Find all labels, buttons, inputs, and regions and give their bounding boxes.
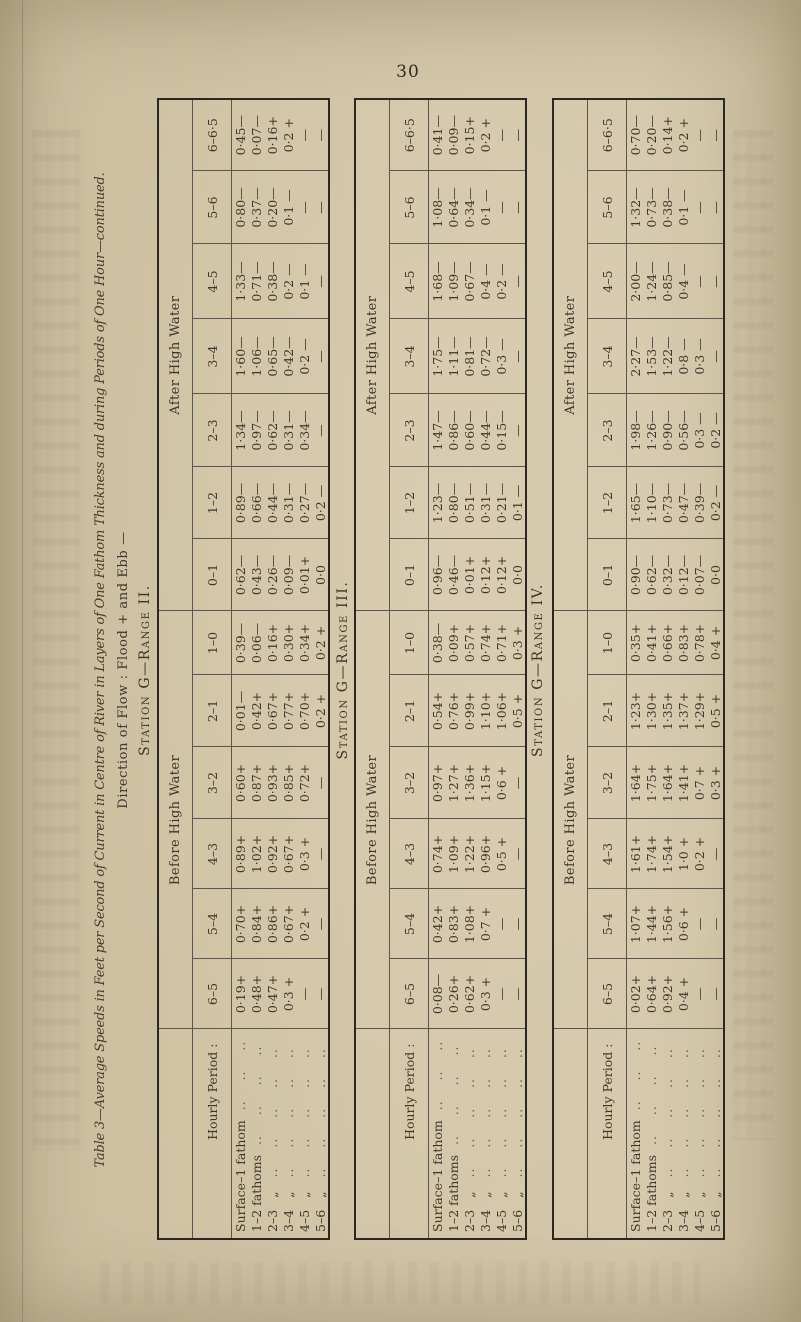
data-cell: 0·70+ (232, 889, 249, 959)
data-cell: 0·14+ (659, 99, 675, 171)
data-cell: 0·2 + (691, 819, 707, 889)
data-cell: 1·64+ (659, 747, 675, 819)
row-label: 1–2 fathoms (643, 1029, 659, 1239)
data-cell: 0·39— (691, 467, 707, 539)
data-cell: 0·08— (429, 959, 446, 1029)
data-cell: 0·96+ (477, 819, 493, 889)
data-cell: — (509, 244, 526, 319)
col-header: 6–5 (588, 959, 627, 1029)
col-header: 0–1 (588, 539, 627, 611)
data-cell: 0·3 — (691, 319, 707, 394)
data-cell: 0·70— (627, 99, 644, 171)
table-row: 5–6„————0·2 +0·2 +0·00·2 —————— (312, 99, 329, 1239)
col-header: 1–2 (390, 467, 429, 539)
data-cell: 0·89+ (232, 819, 249, 889)
data-cell: 0·92+ (264, 819, 280, 889)
data-cell: 0·7 + (477, 889, 493, 959)
data-cell: 0·89— (232, 467, 249, 539)
data-cell: 1·75— (429, 319, 446, 394)
data-cell: 1·41+ (675, 747, 691, 819)
col-header: 6–6·5 (588, 99, 627, 171)
table-row: 3–4„0·3 +0·7 +0·96+1·15+1·10+0·74+0·12+0… (477, 99, 493, 1239)
data-cell: — (691, 99, 707, 171)
group-header-row: Before High WaterAfter High Water (158, 99, 193, 1239)
data-cell: — (296, 171, 312, 244)
data-cell: 0·73— (659, 467, 675, 539)
data-cell: 0·66— (248, 467, 264, 539)
row-label: 4–5„ (691, 1029, 707, 1239)
data-cell: 0·74+ (477, 611, 493, 675)
col-header: 3–2 (390, 747, 429, 819)
data-cell: 0·86+ (264, 889, 280, 959)
data-cell: 1·11— (445, 319, 461, 394)
col-header: 2–1 (390, 675, 429, 747)
data-cell: 0·86— (445, 394, 461, 467)
data-cell: 0·1 — (509, 467, 526, 539)
data-cell: 0·62+ (461, 959, 477, 1029)
table-row: Surface–1 fathom0·19+0·70+0·89+0·60+0·01… (232, 99, 249, 1239)
data-cell: 0·3 + (707, 747, 724, 819)
col-header: 6–6·5 (390, 99, 429, 171)
data-cell: 0·3 + (477, 959, 493, 1029)
data-cell: 1·64+ (627, 747, 644, 819)
data-cell: — (296, 959, 312, 1029)
data-cell: — (312, 889, 329, 959)
row-label: 2–3„ (264, 1029, 280, 1239)
row-label: 3–4„ (280, 1029, 296, 1239)
data-cell: 1·27+ (445, 747, 461, 819)
col-header: 6–5 (193, 959, 232, 1029)
table-row: Surface–1 fathom0·02+1·07+1·61+1·64+1·23… (627, 99, 644, 1239)
data-cell: 0·74+ (429, 819, 446, 889)
group-after-high-water: After High Water (355, 99, 390, 611)
data-cell: 1·54+ (659, 819, 675, 889)
data-cell: 0·31— (477, 467, 493, 539)
col-header: 5–6 (390, 171, 429, 244)
row-label: 3–4„ (675, 1029, 691, 1239)
data-cell: 0·87+ (248, 747, 264, 819)
row-label: 3–4„ (477, 1029, 493, 1239)
table-body: Surface–1 fathom0·19+0·70+0·89+0·60+0·01… (232, 99, 330, 1239)
row-label: 1–2 fathoms (248, 1029, 264, 1239)
data-cell: 0·7 + (691, 747, 707, 819)
data-cell: 0·51— (461, 467, 477, 539)
data-cell: 0·4 — (477, 244, 493, 319)
data-cell: 0·99+ (461, 675, 477, 747)
data-cell: 0·31— (280, 394, 296, 467)
speed-table: Before High WaterAfter High Water Hourly… (354, 98, 527, 1240)
data-cell: 0·5 + (509, 675, 526, 747)
data-cell: 0·16+ (264, 99, 280, 171)
data-cell: 0·67+ (280, 889, 296, 959)
data-cell: 0·85+ (280, 747, 296, 819)
data-cell: 0·83+ (445, 889, 461, 959)
table-row: Surface–1 fathom0·08—0·42+0·74+0·97+0·54… (429, 99, 446, 1239)
data-cell: 0·34— (296, 394, 312, 467)
table-row: 5–6„————0·5 +0·3 +0·00·1 —————— (509, 99, 526, 1239)
data-cell: 1·10+ (477, 675, 493, 747)
col-header: 4–5 (390, 244, 429, 319)
data-cell: — (691, 889, 707, 959)
group-header-row: Before High WaterAfter High Water (553, 99, 588, 1239)
row-label: 2–3„ (659, 1029, 675, 1239)
data-cell: 1·23— (429, 467, 446, 539)
data-cell: 0·97— (248, 394, 264, 467)
data-cell: 0·34+ (296, 611, 312, 675)
data-cell: 0·2 + (296, 889, 312, 959)
col-header: 1–0 (193, 611, 232, 675)
col-header: 2–1 (588, 675, 627, 747)
data-cell: — (493, 171, 509, 244)
table-row: 3–4„0·3 +0·67+0·67+0·85+0·77+0·30+0·09—0… (280, 99, 296, 1239)
col-header: 1–0 (588, 611, 627, 675)
group-empty-cell (355, 1029, 390, 1239)
data-cell: 0·31— (280, 467, 296, 539)
col-header: 2–3 (390, 394, 429, 467)
data-cell: 0·2 — (707, 394, 724, 467)
data-cell: 0·02+ (627, 959, 644, 1029)
data-cell: 1·32— (627, 171, 644, 244)
data-cell: 0·2 — (493, 244, 509, 319)
book-page: 30 Table 3—Average Speeds in Feet per Se… (0, 0, 801, 1322)
data-cell: — (509, 99, 526, 171)
data-cell: 0·6 + (493, 747, 509, 819)
data-cell: 1·35+ (659, 675, 675, 747)
group-before-high-water: Before High Water (553, 611, 588, 1029)
data-cell: — (707, 959, 724, 1029)
data-cell: 0·71— (248, 244, 264, 319)
group-after-high-water: After High Water (553, 99, 588, 611)
data-cell: — (312, 171, 329, 244)
data-cell: — (312, 244, 329, 319)
col-header: 4–5 (193, 244, 232, 319)
data-cell: 2·00— (627, 244, 644, 319)
data-cell: 1·74+ (643, 819, 659, 889)
data-cell: — (509, 819, 526, 889)
data-cell: 0·38— (659, 171, 675, 244)
data-cell: 0·19+ (232, 959, 249, 1029)
col-header: 2–1 (193, 675, 232, 747)
col-header: 4–3 (390, 819, 429, 889)
data-cell: 0·72+ (296, 747, 312, 819)
row-label: 5–6„ (509, 1029, 526, 1239)
data-cell: 0·0 (707, 539, 724, 611)
data-cell: 0·1 — (296, 244, 312, 319)
table-body: Surface–1 fathom0·02+1·07+1·61+1·64+1·23… (627, 99, 725, 1239)
station-caption: Station G—Range II. (137, 100, 153, 1240)
data-cell: — (509, 394, 526, 467)
col-header: 5–6 (588, 171, 627, 244)
data-cell: 1·22+ (461, 819, 477, 889)
data-cell: 0·97+ (429, 747, 446, 819)
row-label: 4–5„ (493, 1029, 509, 1239)
col-header: 1–0 (390, 611, 429, 675)
data-cell: — (707, 319, 724, 394)
data-cell: — (691, 959, 707, 1029)
data-cell: — (509, 959, 526, 1029)
data-cell: 1·08— (429, 171, 446, 244)
group-before-high-water: Before High Water (158, 611, 193, 1029)
data-cell: — (312, 747, 329, 819)
data-cell: 0·62— (232, 539, 249, 611)
data-cell: 0·4 + (707, 611, 724, 675)
data-cell: 0·30+ (280, 611, 296, 675)
station-block: Station G—Range II. Before High WaterAft… (137, 100, 330, 1240)
col-header: 4–5 (588, 244, 627, 319)
data-cell: 0·60+ (232, 747, 249, 819)
data-cell: 0·3 + (509, 611, 526, 675)
data-cell: 0·15+ (461, 99, 477, 171)
data-cell: 0·62— (643, 539, 659, 611)
table-row: 1–2 fathoms0·64+1·44+1·74+1·75+1·30+0·41… (643, 99, 659, 1239)
data-cell: 0·1 — (477, 171, 493, 244)
data-cell: 0·01+ (461, 539, 477, 611)
row-label: 2–3„ (461, 1029, 477, 1239)
data-cell: 0·35+ (627, 611, 644, 675)
data-cell: 0·2 + (312, 611, 329, 675)
data-cell: 0·01+ (296, 539, 312, 611)
col-header: 4–3 (588, 819, 627, 889)
data-cell: 0·2 + (312, 675, 329, 747)
data-cell: 1·37+ (675, 675, 691, 747)
col-header: 5–4 (588, 889, 627, 959)
data-cell: — (707, 244, 724, 319)
data-cell: 0·41+ (643, 611, 659, 675)
station-caption: Station G—Range IV. (530, 100, 546, 1240)
data-cell: 1·02+ (248, 819, 264, 889)
data-cell: 0·26+ (445, 959, 461, 1029)
data-cell: 1·07+ (627, 889, 644, 959)
table-body: Surface–1 fathom0·08—0·42+0·74+0·97+0·54… (429, 99, 527, 1239)
table-row: 2–3„0·62+1·08+1·22+1·36+0·99+0·57+0·01+0… (461, 99, 477, 1239)
data-cell: 0·2 — (296, 319, 312, 394)
table-row: 2–3„0·92+1·56+1·54+1·64+1·35+0·66+0·32—0… (659, 99, 675, 1239)
data-cell: 1·15+ (477, 747, 493, 819)
data-cell: 0·85— (659, 244, 675, 319)
data-cell: 0·67+ (264, 675, 280, 747)
showthrough-bottom (100, 1262, 700, 1304)
col-header: 0–1 (390, 539, 429, 611)
data-cell: 0·38— (429, 611, 446, 675)
data-cell: 0·54+ (429, 675, 446, 747)
table-row: 3–4„0·4 +0·6 +1·0 +1·41+1·37+0·83+0·12—0… (675, 99, 691, 1239)
speed-table: Before High WaterAfter High Water Hourly… (157, 98, 330, 1240)
data-cell: 0·5 + (707, 675, 724, 747)
group-empty-cell (158, 1029, 193, 1239)
column-header-row: Hourly Period : 6–55–44–33–22–11–00–11–2… (588, 99, 627, 1239)
group-after-high-water: After High Water (158, 99, 193, 611)
hourly-period-header: Hourly Period : (390, 1029, 429, 1239)
data-cell: 0·01— (232, 675, 249, 747)
data-cell: — (312, 819, 329, 889)
station-block: Station G—Range IV. Before High WaterAft… (530, 100, 725, 1240)
table-row: 4–5„——0·2 +0·7 +1·29+0·78+0·07—0·39—0·3 … (691, 99, 707, 1239)
data-cell: 0·8 — (675, 319, 691, 394)
data-cell: 0·57+ (461, 611, 477, 675)
data-cell: — (509, 319, 526, 394)
col-header: 6–5 (390, 959, 429, 1029)
data-cell: 0·47— (675, 467, 691, 539)
row-label: Surface–1 fathom (627, 1029, 644, 1239)
data-cell: 0·80— (232, 171, 249, 244)
data-cell: 0·12— (675, 539, 691, 611)
data-cell: 0·34— (461, 171, 477, 244)
data-cell: 0·2 — (280, 244, 296, 319)
data-cell: 0·70+ (296, 675, 312, 747)
group-before-high-water: Before High Water (355, 611, 390, 1029)
column-header-row: Hourly Period : 6–55–44–33–22–11–00–11–2… (193, 99, 232, 1239)
data-cell: — (691, 244, 707, 319)
data-cell: 0·73— (643, 171, 659, 244)
col-header: 2–3 (193, 394, 232, 467)
table-row: 4–5„——0·5 +0·6 +1·06+0·71+0·12+0·21—0·15… (493, 99, 509, 1239)
data-cell: 0·42— (280, 319, 296, 394)
data-cell: 1·22— (659, 319, 675, 394)
row-label: 4–5„ (296, 1029, 312, 1239)
row-label: Surface–1 fathom (429, 1029, 446, 1239)
col-header: 5–4 (390, 889, 429, 959)
data-cell: 0·2 — (312, 467, 329, 539)
table-row: 1–2 fathoms0·26+0·83+1·09+1·27+0·76+0·09… (445, 99, 461, 1239)
data-cell: 0·2 + (675, 99, 691, 171)
data-cell: 1·0 + (675, 819, 691, 889)
data-cell: 0·84+ (248, 889, 264, 959)
data-cell: 1·10— (643, 467, 659, 539)
row-label: 5–6„ (312, 1029, 329, 1239)
data-cell: — (493, 889, 509, 959)
data-cell: 0·64+ (643, 959, 659, 1029)
data-cell: — (509, 747, 526, 819)
data-cell: — (493, 99, 509, 171)
data-cell: 0·20— (643, 99, 659, 171)
data-cell: 0·47+ (264, 959, 280, 1029)
showthrough-right (733, 130, 773, 1140)
data-cell: 1·34— (232, 394, 249, 467)
data-cell: 0·5 + (493, 819, 509, 889)
data-cell: 0·09— (445, 99, 461, 171)
data-cell: 0·2 + (280, 99, 296, 171)
data-cell: — (493, 959, 509, 1029)
flow-direction-subtitle: Direction of Flow : Flood + and Ebb — (116, 100, 131, 1240)
col-header: 3–4 (193, 319, 232, 394)
data-cell: 1·60— (232, 319, 249, 394)
data-cell: 0·3 — (691, 394, 707, 467)
data-cell: 0·92+ (659, 959, 675, 1029)
data-cell: 0·15— (493, 394, 509, 467)
data-cell: 0·64— (445, 171, 461, 244)
data-cell: 0·42+ (248, 675, 264, 747)
data-cell: 0·12+ (493, 539, 509, 611)
data-cell: 1·98— (627, 394, 644, 467)
table-row: 1–2 fathoms0·48+0·84+1·02+0·87+0·42+0·06… (248, 99, 264, 1239)
table-title: Table 3—Average Speeds in Feet per Secon… (93, 100, 108, 1240)
data-cell: — (691, 171, 707, 244)
data-cell: 1·24— (643, 244, 659, 319)
col-header: 3–2 (193, 747, 232, 819)
data-cell: 1·53— (643, 319, 659, 394)
data-cell: 1·09— (445, 244, 461, 319)
column-header-row: Hourly Period : 6–55–44–33–22–11–00–11–2… (390, 99, 429, 1239)
data-cell: — (312, 319, 329, 394)
data-cell: 1·68— (429, 244, 446, 319)
col-header: 3–4 (588, 319, 627, 394)
data-cell: 0·44— (477, 394, 493, 467)
data-cell: — (312, 99, 329, 171)
data-cell: 1·29+ (691, 675, 707, 747)
data-cell: 0·76+ (445, 675, 461, 747)
col-header: 3–2 (588, 747, 627, 819)
data-cell: 0·4 + (675, 959, 691, 1029)
col-header: 6–6·5 (193, 99, 232, 171)
group-header-row: Before High WaterAfter High Water (355, 99, 390, 1239)
data-cell: 2·27— (627, 319, 644, 394)
data-cell: 1·56+ (659, 889, 675, 959)
data-cell: 0·39— (232, 611, 249, 675)
data-cell: 0·90— (659, 394, 675, 467)
data-cell: 0·78+ (691, 611, 707, 675)
col-header: 5–4 (193, 889, 232, 959)
data-cell: 0·1 — (675, 171, 691, 244)
data-cell: 0·56— (675, 394, 691, 467)
data-cell: 0·3 + (280, 959, 296, 1029)
data-cell: — (509, 171, 526, 244)
data-cell: 1·09+ (445, 819, 461, 889)
col-header: 4–3 (193, 819, 232, 889)
data-cell: — (312, 959, 329, 1029)
data-cell: 0·32— (659, 539, 675, 611)
data-cell: 0·44— (264, 467, 280, 539)
data-cell: 0·06— (248, 611, 264, 675)
station-block: Station G—Range III. Before High WaterAf… (335, 100, 527, 1240)
data-cell: — (509, 889, 526, 959)
data-cell: 0·16+ (264, 611, 280, 675)
showthrough-left (32, 130, 80, 1150)
data-cell: 0·45— (232, 99, 249, 171)
data-cell: 0·60— (461, 394, 477, 467)
data-cell: 1·23+ (627, 675, 644, 747)
data-cell: 0·90— (627, 539, 644, 611)
data-cell: 0·42+ (429, 889, 446, 959)
data-cell: 0·83+ (675, 611, 691, 675)
data-cell: 1·33— (232, 244, 249, 319)
data-cell: 0·2 + (477, 99, 493, 171)
group-empty-cell (553, 1029, 588, 1239)
data-cell: 0·20— (264, 171, 280, 244)
data-cell: 0·71+ (493, 611, 509, 675)
data-cell: 0·27— (296, 467, 312, 539)
data-cell: 0·46— (445, 539, 461, 611)
data-cell: 0·2 — (707, 467, 724, 539)
data-cell: 0·93+ (264, 747, 280, 819)
data-cell: 0·67+ (280, 819, 296, 889)
table-row: 4–5„—0·2 +0·3 +0·72+0·70+0·34+0·01+0·27—… (296, 99, 312, 1239)
data-cell: 1·44+ (643, 889, 659, 959)
data-cell: 0·66+ (659, 611, 675, 675)
data-cell: 0·09+ (445, 611, 461, 675)
col-header: 1–2 (588, 467, 627, 539)
col-header: 3–4 (390, 319, 429, 394)
data-cell: 0·6 + (675, 889, 691, 959)
data-cell: 1·06+ (493, 675, 509, 747)
rotated-table-area: Table 3—Average Speeds in Feet per Secon… (93, 100, 725, 1240)
data-cell: 1·06— (248, 319, 264, 394)
data-cell: 1·30+ (643, 675, 659, 747)
data-cell: 0·43— (248, 539, 264, 611)
col-header: 5–6 (193, 171, 232, 244)
data-cell: 1·26— (643, 394, 659, 467)
data-cell: — (312, 394, 329, 467)
row-label: 1–2 fathoms (445, 1029, 461, 1239)
